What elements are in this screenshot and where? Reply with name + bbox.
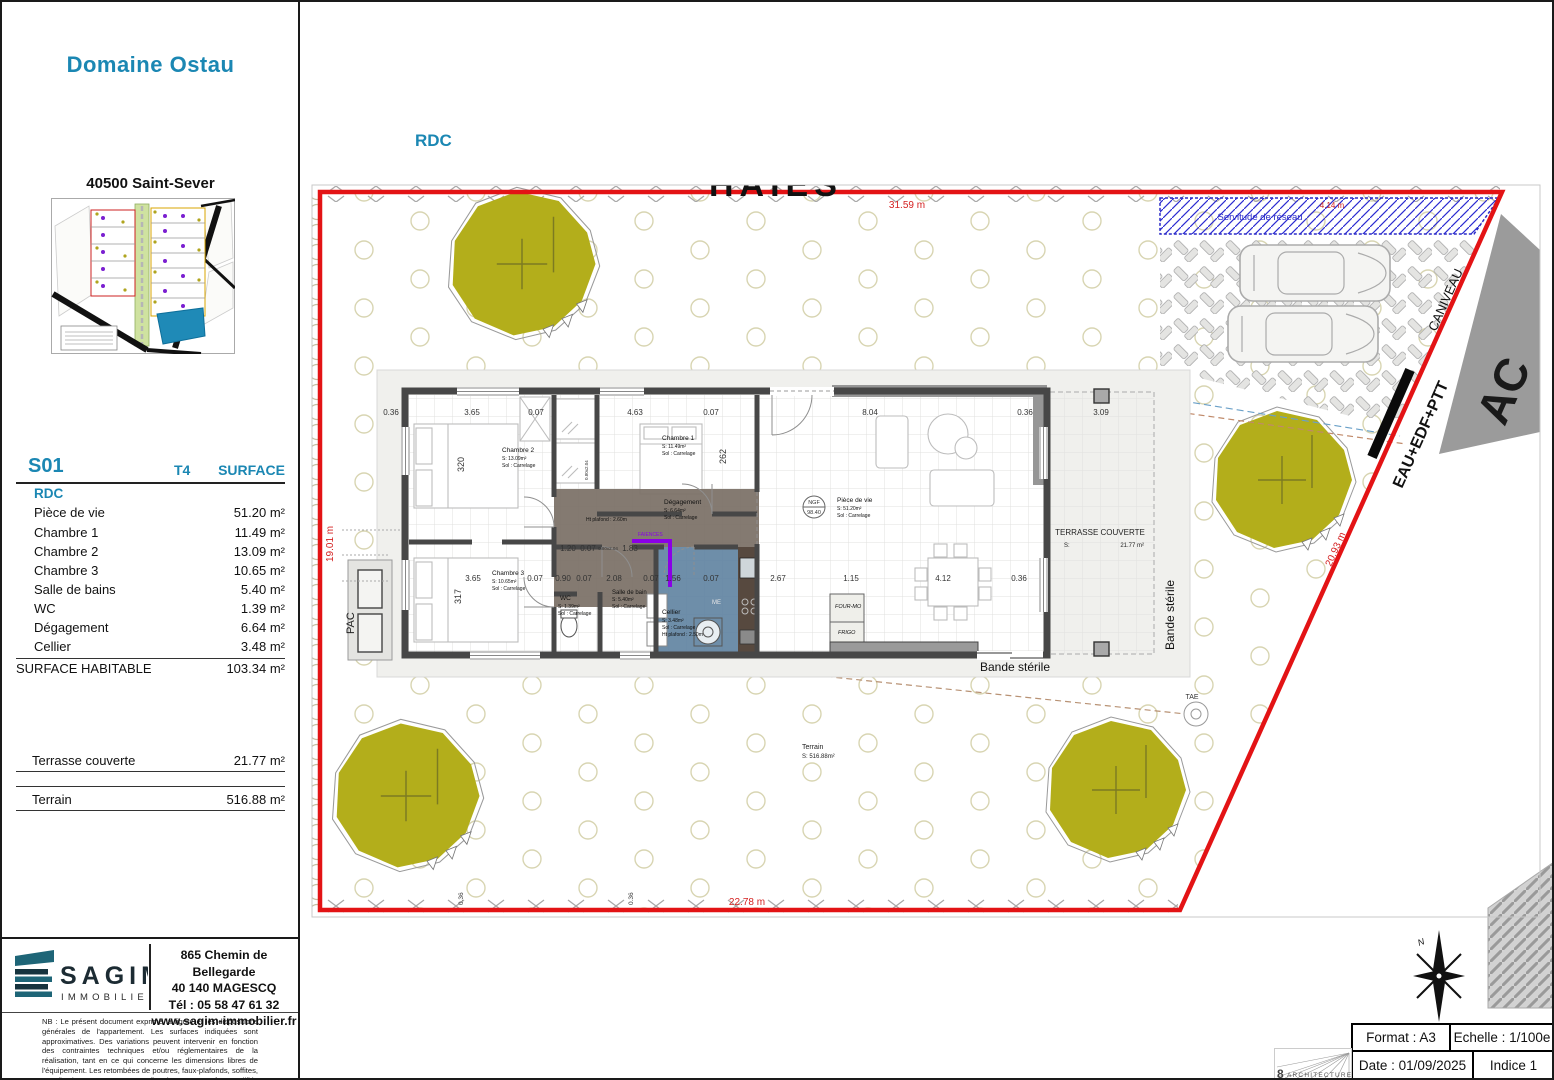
row-label: Salle de bains [34, 582, 116, 597]
row-value: 6.64 m² [241, 620, 285, 635]
row-label: Pièce de vie [34, 505, 105, 520]
total-value: 103.34 m² [226, 661, 285, 676]
room-floor: Sol : Carrelage [662, 451, 696, 457]
room-area: S: 51.20m² [837, 506, 862, 512]
room-floor: Sol : Carrelage [837, 513, 871, 519]
surface-column-header: SURFACE [218, 462, 285, 478]
row-label: Chambre 3 [34, 563, 98, 578]
room-floor: Sol : Carrelage [612, 604, 646, 610]
divider [16, 786, 285, 787]
divider [16, 771, 285, 772]
north-letter: N [1416, 936, 1426, 948]
north-arrow: N [1413, 930, 1465, 1022]
dim-label: 0.36 [1011, 574, 1027, 583]
agency-subtitle: IMMOBILIER [61, 992, 148, 1003]
table-row: Chambre 213.09 m² [34, 544, 285, 559]
divider [16, 658, 285, 659]
table-row: WC1.39 m² [34, 601, 285, 616]
room-name: Chambre 2 [502, 447, 535, 454]
terrace-post [1094, 389, 1109, 403]
total-row: SURFACE HABITABLE103.34 m² [16, 661, 285, 676]
table-row: Cellier3.48 m² [34, 639, 285, 654]
project-title: Domaine Ostau [2, 52, 299, 78]
room-name: Chambre 1 [662, 435, 695, 442]
thumbnail-legend [61, 326, 117, 350]
architect-logo-box: 8 ARCHITECTURE [1274, 1048, 1352, 1080]
dim-label: 0.07 [703, 574, 719, 583]
dim-label: 2.67 [770, 574, 786, 583]
scale-cell: Echelle : 1/100e [1449, 1023, 1554, 1052]
appliance-label: FRIGO [838, 630, 856, 636]
car [1228, 306, 1378, 362]
agency-address-line1: 865 Chemin de Bellegarde [149, 947, 299, 980]
room-floor: Sol : Carrelage [492, 586, 526, 592]
ngf-value: 98.40 [807, 510, 821, 516]
room-name: Cellier [662, 609, 681, 616]
drawing-sheet: Domaine Ostau 40500 Saint-Sever [0, 0, 1554, 1080]
table-row: Chambre 310.65 m² [34, 563, 285, 578]
ngf-marker: NGF 98.40 [803, 496, 825, 518]
row-value: 13.09 m² [234, 544, 285, 559]
dim-label: 317 [453, 589, 463, 604]
room-area: S: 10.65m² [492, 579, 517, 585]
architect-name: ARCHITECTURE [1287, 1072, 1351, 1079]
room-area: S: 3.48m² [662, 618, 684, 624]
lot-number: S01 [28, 455, 64, 478]
terrace-post [1094, 642, 1109, 656]
dim-label: 4.63 [627, 408, 643, 417]
dim-label: 0.07 [580, 544, 596, 553]
table-row: Salle de bains5.40 m² [34, 582, 285, 597]
sagim-logo: SAGIM IMMOBILIER [12, 948, 148, 1006]
row-value: 3.48 m² [241, 639, 285, 654]
room-floor: Sol : Carrelage [664, 515, 698, 521]
table-row: Dégagement6.64 m² [34, 620, 285, 635]
dim-label: 3.65 [464, 408, 480, 417]
dim-label: 0.36 [628, 892, 635, 905]
room-name: Pièce de vie [837, 497, 873, 504]
room-area: S: 11.49m² [662, 444, 686, 450]
thumbnail-lots-left [91, 210, 135, 296]
dim-label: 1.15 [843, 574, 859, 583]
table-row: Pièce de vie51.20 m² [34, 505, 285, 520]
room-name: Salle de bain [612, 590, 647, 596]
terrain-area: S: 516.88m² [802, 754, 835, 760]
ngf-label: NGF [808, 500, 820, 506]
dim-servitude: 4.14 m [1320, 201, 1345, 210]
dim-label: 0.07 [527, 574, 543, 583]
door-size-label: 0.80x2.04 [598, 546, 618, 551]
appliance-label: FOUR-MO [835, 604, 862, 610]
row-value: 11.49 m² [235, 525, 285, 540]
terrain-row: Terrain516.88 m² [32, 792, 285, 807]
row-label: Dégagement [34, 620, 108, 635]
format-cell: Format : A3 [1351, 1023, 1451, 1052]
dim-label: 8.04 [862, 408, 878, 417]
table-row: Chambre 111.49 m² [34, 525, 285, 540]
room-area: S: 6.64m² [664, 508, 686, 514]
dim-bottom: 22.78 m [729, 897, 765, 908]
divider [16, 810, 285, 811]
room-area: S: 13.09m² [502, 456, 527, 462]
room-floor: Sol : Carrelage [558, 611, 592, 617]
plan-level-label: RDC [415, 131, 452, 150]
room-floor: Sol : Carrelage [502, 463, 536, 469]
terrace-label: Terrasse couverte [32, 753, 135, 768]
room-height: Ht plafond : 2.50m [662, 632, 703, 638]
road-band-bottom-right [1488, 862, 1554, 1008]
terrace-label: TERRASSE COUVERTE [1055, 528, 1145, 537]
terrace-row: Terrasse couverte21.77 m² [32, 753, 285, 768]
room-area: S: 1.39m² [558, 604, 580, 610]
disclaimer-text: NB : Le présent document exprime la figu… [42, 1017, 258, 1080]
total-label: SURFACE HABITABLE [16, 661, 152, 676]
room-name: WC [560, 595, 571, 602]
servitude-band: Servitude de réseau 4.14 m [1160, 198, 1499, 234]
row-value: 51.20 m² [234, 505, 285, 520]
bande-sterile-label-h: Bande stérile [980, 660, 1050, 674]
agency-name: SAGIM [60, 962, 148, 990]
terrain-label: Terrain [32, 792, 72, 807]
level-label: RDC [34, 486, 63, 501]
room-floor: Sol : Carrelage [662, 625, 696, 631]
terrace-s: S: [1064, 543, 1070, 549]
location-title: 40500 Saint-Sever [2, 175, 299, 192]
faience-label: FAIENCES [638, 532, 663, 538]
date-cell: Date : 01/09/2025 [1351, 1050, 1474, 1080]
room-name: Dégagement [664, 499, 701, 506]
terrain-value: 516.88 m² [226, 792, 285, 807]
corridor-floor [554, 489, 759, 547]
indice-cell: Indice 1 [1472, 1050, 1554, 1080]
door-size-label: 0.80x2.04 [584, 460, 589, 480]
row-value: 5.40 m² [241, 582, 285, 597]
site-plan-thumbnail [51, 198, 235, 354]
dim-label: 1.56 [665, 574, 681, 583]
divider [16, 482, 285, 484]
thumbnail-lots-right [151, 208, 205, 316]
row-label: WC [34, 601, 56, 616]
dim-label: 0.36 [1017, 408, 1033, 417]
room-name: Chambre 3 [492, 570, 525, 577]
dim-left: 19.01 m [325, 526, 336, 562]
room-area: S: 5.40m² [612, 597, 634, 603]
divider [2, 1012, 299, 1013]
car [1240, 245, 1390, 301]
architect-logo: 8 ARCHITECTURE [1275, 1049, 1351, 1080]
dim-label: 0.07 [528, 408, 544, 417]
dim-label: 0.36 [383, 408, 399, 417]
row-label: Chambre 2 [34, 544, 98, 559]
agency-phone: Tél : 05 58 47 61 32 [149, 997, 299, 1014]
dim-top: 31.59 m [889, 200, 925, 211]
architect-number: 8 [1277, 1067, 1284, 1080]
dim-label: 1.20 [560, 544, 576, 553]
dim-label: 0.07 [703, 408, 719, 417]
dim-label: 2.08 [606, 574, 622, 583]
site-plan: AC Servitude de réseau 4.14 m 6.81 m TAE [299, 2, 1554, 1080]
tae-label: TAE [1185, 694, 1198, 701]
ceiling-note: Ht plafond : 2.60m [586, 517, 627, 523]
terrace-value: 21.77 m² [234, 753, 285, 768]
dim-label: 0.07 [643, 574, 659, 583]
divider [2, 937, 299, 939]
agency-address-line2: 40 140 MAGESCQ [149, 980, 299, 997]
appliance-label: ME [712, 600, 721, 606]
dim-label: 3.09 [1093, 408, 1109, 417]
terrain-label: Terrain [802, 744, 824, 751]
sidebar: Domaine Ostau 40500 Saint-Sever [2, 2, 299, 1080]
dim-label: 1.83 [622, 544, 638, 553]
dim-label: 0.07 [576, 574, 592, 583]
pac-label: PAC [345, 612, 357, 634]
terrace-area: 21.77 m² [1120, 543, 1144, 549]
lot-type: T4 [174, 462, 190, 478]
dim-label: 262 [718, 449, 728, 464]
row-value: 1.39 m² [241, 601, 285, 616]
dim-label: 4.12 [935, 574, 951, 583]
dim-label: 0.90 [555, 574, 571, 583]
row-value: 10.65 m² [234, 563, 285, 578]
bande-sterile-label-v: Bande stérile [1163, 580, 1177, 650]
row-label: Chambre 1 [34, 525, 98, 540]
row-label: Cellier [34, 639, 71, 654]
pac-unit: PAC [345, 560, 392, 660]
dim-label: 320 [456, 457, 466, 472]
dim-label: 3.65 [465, 574, 481, 583]
dim-label: 0.36 [458, 892, 465, 905]
servitude-label: Servitude de réseau [1217, 212, 1302, 223]
